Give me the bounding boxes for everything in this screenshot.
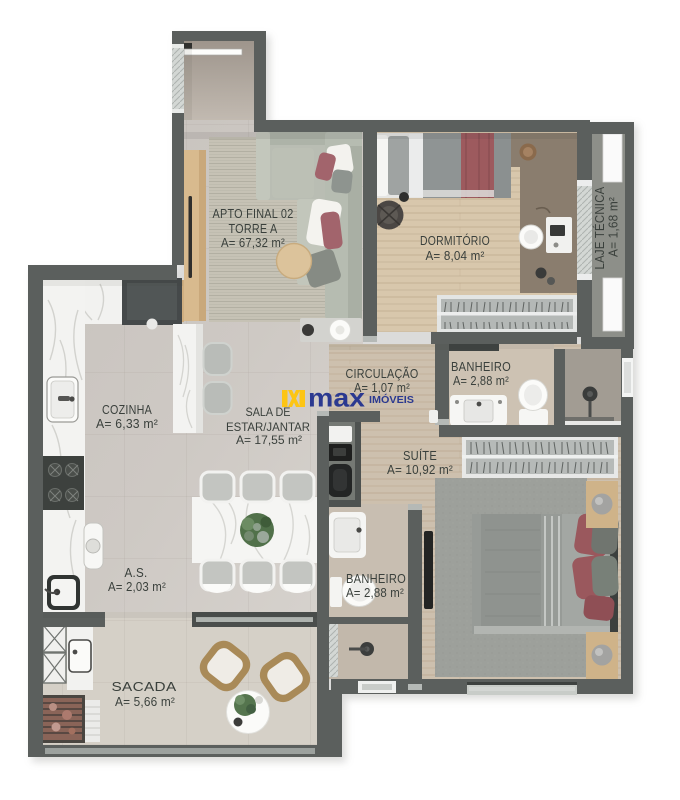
svg-text:SUÍTE: SUÍTE bbox=[403, 448, 437, 463]
svg-text:DORMITÓRIO: DORMITÓRIO bbox=[420, 233, 490, 248]
svg-text:CIRCULAÇÃO: CIRCULAÇÃO bbox=[346, 366, 419, 381]
svg-text:BANHEIRO: BANHEIRO bbox=[346, 571, 406, 586]
svg-text:A= 2,88 m²: A= 2,88 m² bbox=[346, 585, 404, 600]
svg-text:A= 67,32 m²: A= 67,32 m² bbox=[221, 235, 285, 250]
svg-text:A.S.: A.S. bbox=[125, 565, 148, 580]
svg-text:A= 1,68 m²: A= 1,68 m² bbox=[606, 197, 621, 257]
svg-text:A= 2,88 m²: A= 2,88 m² bbox=[453, 373, 509, 388]
svg-text:ESTAR/JANTAR: ESTAR/JANTAR bbox=[226, 420, 310, 434]
svg-text:BANHEIRO: BANHEIRO bbox=[451, 359, 511, 374]
svg-text:SACADA: SACADA bbox=[112, 679, 177, 694]
svg-text:TORRE A: TORRE A bbox=[229, 221, 278, 236]
svg-text:A= 6,33 m²: A= 6,33 m² bbox=[96, 416, 158, 431]
svg-text:APTO FINAL 02: APTO FINAL 02 bbox=[213, 206, 294, 221]
svg-text:IMÓVEIS: IMÓVEIS bbox=[369, 394, 414, 406]
svg-text:A= 8,04 m²: A= 8,04 m² bbox=[426, 248, 485, 263]
svg-text:A= 2,03 m²: A= 2,03 m² bbox=[108, 579, 166, 594]
svg-text:A= 17,55 m²: A= 17,55 m² bbox=[236, 433, 302, 447]
svg-text:COZINHA: COZINHA bbox=[102, 402, 152, 417]
svg-text:max: max bbox=[308, 383, 366, 413]
svg-text:A= 10,92 m²: A= 10,92 m² bbox=[387, 462, 453, 477]
svg-text:A= 5,66 m²: A= 5,66 m² bbox=[115, 694, 175, 709]
svg-text:SALA DE: SALA DE bbox=[246, 405, 291, 419]
